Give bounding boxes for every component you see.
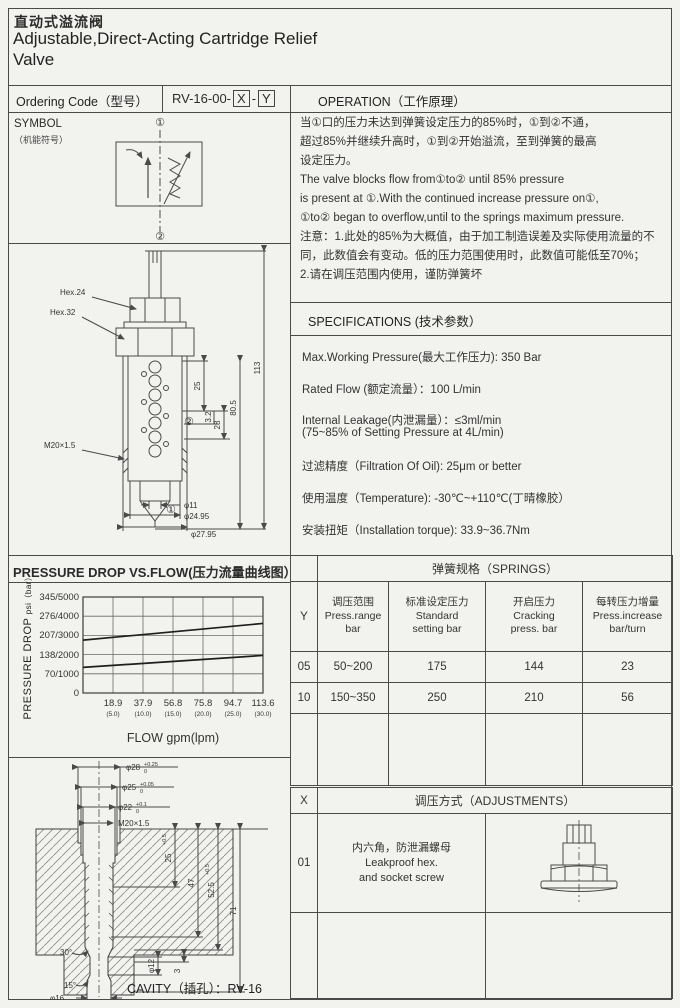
- cavity-angle-15-label: 15°: [64, 981, 76, 990]
- spring-increase: 56: [583, 683, 673, 714]
- dia-27-95-label: φ27.95: [191, 530, 217, 539]
- spec-torque: 安装扭矩（Installation torque): 33.9~36.7Nm: [302, 522, 530, 538]
- adjustments-table: X 调压方式（ADJUSTMENTS） 01 内六角，防泄漏螺母 Leakpro…: [290, 787, 673, 999]
- specifications-title: SPECIFICATIONS (技术参数）: [308, 311, 481, 330]
- symbol-port1-label: ①: [155, 117, 165, 129]
- cavity-drawing: φ28 +0.25 0 φ25 +0.05 0 φ22 +0.1 0 M20×1…: [8, 757, 290, 1000]
- header-unit: press. bar: [486, 623, 582, 637]
- ordering-code-prefix: RV-16-00-: [172, 91, 231, 106]
- springs-table-title: 弹簧规格（SPRINGS）: [318, 556, 673, 582]
- operation-line: The valve blocks flow from①to② until 85%…: [300, 171, 655, 190]
- adjustment-desc-en1: Leakproof hex.: [318, 856, 485, 871]
- adjustments-x-col-label: X: [291, 788, 318, 814]
- y-tick: 138/2000: [39, 650, 79, 661]
- spec-internal-leakage-note: (75~85% of Setting Pressure at 4L/min): [302, 427, 504, 439]
- header-unit: bar/turn: [583, 623, 672, 637]
- port2-marker: ②: [184, 416, 194, 428]
- x-tick-lpm: (10.0): [135, 711, 152, 718]
- header-en: Press.increase: [583, 610, 672, 624]
- cavity-dia12-label: φ12: [147, 958, 156, 973]
- spring-standard: 250: [389, 683, 486, 714]
- cavity-dia28-label: φ28: [126, 763, 141, 772]
- symbol-port2-label: ②: [155, 231, 165, 243]
- spring-range: 150~350: [318, 683, 389, 714]
- operation-line: 当①口的压力未达到弹簧设定压力的85%时，①到②不通，: [300, 114, 655, 133]
- spring-cracking: 210: [486, 683, 583, 714]
- header-zh: 标准设定压力: [389, 596, 485, 610]
- x-tick: 75.8: [194, 698, 213, 709]
- header-en: Standard: [389, 610, 485, 624]
- spec-filtration: 过滤精度（Filtration Of Oil): 25μm or better: [302, 458, 521, 474]
- springs-header-standard: 标准设定压力 Standard setting bar: [389, 582, 486, 652]
- header-zh: 开启压力: [486, 596, 582, 610]
- spec-rated-flow: Rated Flow (额定流量）：100 L/min: [302, 381, 481, 397]
- springs-row-10: 10 150~350 250 210 56: [291, 683, 673, 714]
- cavity-caption: CAVITY（插孔）：RV-16: [127, 978, 262, 997]
- hex32-label: Hex.32: [50, 308, 76, 317]
- adjustments-table-title: 调压方式（ADJUSTMENTS）: [318, 788, 673, 814]
- hex24-label: Hex.24: [60, 288, 86, 297]
- adjustment-screw-drawing: [529, 817, 629, 905]
- springs-header-increase: 每转压力增量 Press.increase bar/turn: [583, 582, 673, 652]
- header-zh: 调压范围: [318, 596, 388, 610]
- title-english-line2: Valve: [13, 50, 54, 70]
- operation-line: ①to② began to overflow,until to the spri…: [300, 209, 655, 228]
- adjustment-screw-cell: [486, 814, 673, 913]
- x-tick: 18.9: [104, 698, 123, 709]
- divider: [8, 85, 671, 86]
- x-tick: 113.6: [251, 698, 274, 709]
- port1-marker: ①: [166, 504, 176, 516]
- chart-title: PRESSURE DROP VS.FLOW(压力流量曲线图）: [13, 562, 297, 581]
- x-tick-lpm: (30.0): [255, 711, 272, 718]
- divider: [290, 112, 671, 113]
- x-tick-lpm: (15.0): [165, 711, 182, 718]
- dia-24-95-label: φ24.95: [184, 512, 210, 521]
- dim-113: 113: [253, 361, 262, 374]
- valve-cross-section-drawing: Hex.24 Hex.32 M20×1.5 ② ① 25 3.2 28 80.5…: [8, 243, 290, 555]
- cavity-dia25-label: φ25: [122, 783, 137, 792]
- ordering-code-separator: -: [252, 91, 256, 106]
- springs-row-05: 05 50~200 175 144 23: [291, 652, 673, 683]
- header-unit: setting bar: [389, 623, 485, 637]
- spring-increase: 23: [583, 652, 673, 683]
- cavity-dia25-tol-sub: 0: [140, 789, 143, 795]
- cavity-thread-label: M20×1.5: [118, 819, 150, 828]
- cavity-dia16-label: φ16: [50, 994, 65, 1000]
- spring-code: 05: [291, 652, 318, 683]
- pressure-drop-chart: 345/5000 276/4000 207/3000 138/2000 70/1…: [8, 582, 290, 757]
- divider: [162, 85, 163, 112]
- cavity-dia28-tol-sup: +0.25: [144, 762, 158, 768]
- title-english-line1: Adjustable,Direct-Acting Cartridge Relie…: [13, 29, 317, 49]
- operation-line: is present at ①.With the continued incre…: [300, 190, 655, 209]
- operation-title: OPERATION（工作原理）: [318, 91, 466, 110]
- y-tick: 70/1000: [45, 669, 79, 680]
- spec-internal-leakage: Internal Leakage(内泄漏量）：≤3ml/min: [302, 412, 501, 428]
- operation-text: 当①口的压力未达到弹簧设定压力的85%时，①到②不通， 超过85%并继续升高时，…: [300, 114, 655, 285]
- dim-28: 28: [213, 420, 222, 429]
- divider: [290, 85, 291, 555]
- operation-line: 注意：1.此处的85%为大概值，由于加工制造误差及实际使用流量的不: [300, 228, 655, 247]
- y-tick: 276/4000: [39, 611, 79, 622]
- header-en: Cracking: [486, 610, 582, 624]
- cavity-dim-25: 25: [164, 853, 173, 862]
- cavity-dia22-label: φ22: [118, 803, 133, 812]
- cavity-dim-71: 71: [229, 906, 238, 915]
- dim-25: 25: [193, 381, 202, 390]
- adjustment-code: 01: [291, 814, 318, 913]
- header-unit: bar: [318, 623, 388, 637]
- hydraulic-symbol-drawing: ① ②: [8, 112, 290, 243]
- adjustment-desc-en2: and socket screw: [318, 871, 485, 886]
- x-tick-lpm: (5.0): [106, 711, 119, 718]
- dia-11-label: φ11: [184, 501, 198, 510]
- thread-label: M20×1.5: [44, 441, 76, 450]
- spring-cracking: 144: [486, 652, 583, 683]
- cavity-dim-3: 3: [173, 968, 182, 973]
- chart-x-axis-label: FLOW gpm(lpm): [127, 731, 219, 745]
- dim-80-5: 80.5: [229, 400, 238, 416]
- ordering-code-y-box: Y: [258, 90, 275, 107]
- cavity-dim-52-5: 52.5: [207, 882, 216, 898]
- spec-max-pressure: Max.Working Pressure(最大工作压力): 350 Bar: [302, 349, 541, 365]
- y-tick: 0: [74, 688, 79, 699]
- adjustments-empty-row: [291, 913, 673, 999]
- adjustments-row-01: 01 内六角，防泄漏螺母 Leakproof hex. and socket s…: [291, 814, 673, 913]
- adjustment-desc-zh: 内六角，防泄漏螺母: [318, 841, 485, 856]
- spring-code: 10: [291, 683, 318, 714]
- springs-y-corner-cell: [291, 556, 318, 582]
- spring-standard: 175: [389, 652, 486, 683]
- adjustment-description: 内六角，防泄漏螺母 Leakproof hex. and socket scre…: [318, 814, 486, 913]
- springs-table: 弹簧规格（SPRINGS） Y 调压范围 Press.range bar 标准设…: [290, 555, 673, 786]
- cavity-block-left: [36, 829, 90, 995]
- cavity-dia28-tol-sub: 0: [144, 769, 147, 775]
- cavity-dia22-tol-sub: 0: [136, 809, 139, 815]
- operation-line: 同，此数值会有变动。低的压力范围使用时，此数值可能低至70%；: [300, 247, 655, 266]
- ordering-code-x-box: X: [233, 90, 250, 107]
- springs-header-cracking: 开启压力 Cracking press. bar: [486, 582, 583, 652]
- cavity-dia22-tol-sup: +0.1: [136, 802, 147, 808]
- cavity-dim-52-5-tol: +0.5: [205, 864, 211, 875]
- y-tick: 207/3000: [39, 630, 79, 641]
- x-tick: 56.8: [164, 698, 183, 709]
- operation-line: 超过85%并继续升高时，①到②开始溢流，至到弹簧的最高: [300, 133, 655, 152]
- ordering-code-value: RV-16-00-X-Y: [172, 90, 277, 107]
- operation-line: 2.请在调压范围内使用，谨防弹簧坏: [300, 266, 655, 285]
- cavity-dim-47: 47: [187, 878, 196, 887]
- springs-empty-row: [291, 714, 673, 786]
- ordering-code-label: Ordering Code（型号）: [16, 91, 148, 110]
- cavity-dia25-tol-sup: +0.05: [140, 782, 154, 788]
- x-tick-lpm: (25.0): [225, 711, 242, 718]
- spec-temperature: 使用温度（Temperature): -30℃~+110℃(丁晴橡胶）: [302, 490, 570, 506]
- spring-range: 50~200: [318, 652, 389, 683]
- springs-header-range: 调压范围 Press.range bar: [318, 582, 389, 652]
- divider: [290, 302, 671, 303]
- operation-line: 设定压力。: [300, 152, 655, 171]
- x-tick-lpm: (20.0): [195, 711, 212, 718]
- header-zh: 每转压力增量: [583, 596, 672, 610]
- divider: [290, 335, 671, 336]
- x-tick: 94.7: [224, 698, 243, 709]
- dim-3-2: 3.2: [204, 411, 213, 423]
- x-tick: 37.9: [134, 698, 153, 709]
- cavity-dim-25-tol: +0.5: [162, 834, 168, 845]
- header-en: Press.range: [318, 610, 388, 624]
- y-tick: 345/5000: [39, 592, 79, 603]
- datasheet-page: 直动式溢流阀 Adjustable,Direct-Acting Cartridg…: [0, 0, 680, 1008]
- cavity-angle-30-label: 30°: [60, 948, 72, 957]
- springs-y-col-label: Y: [291, 582, 318, 652]
